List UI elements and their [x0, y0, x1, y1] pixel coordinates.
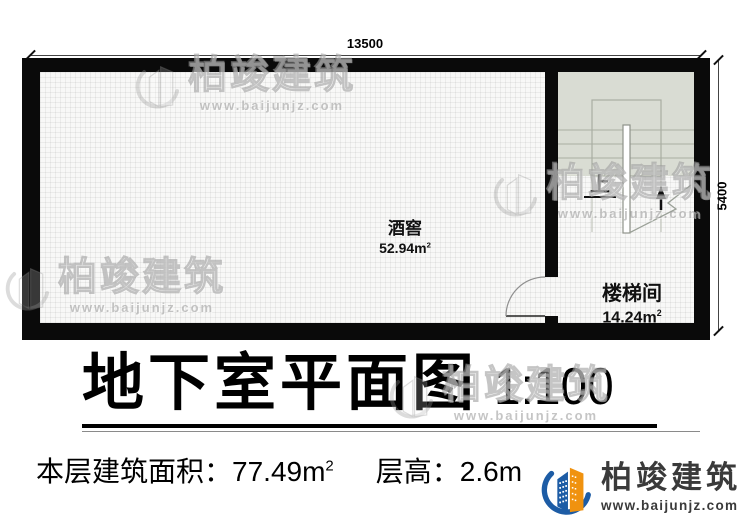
floor-height-value: 2.6m: [460, 456, 522, 487]
room-label-stair-room: 楼梯间 14.24m2: [602, 277, 662, 327]
dimension-line-top: [30, 55, 701, 56]
floorplan-outline: 上 酒窖 52.94m2 楼梯间 14.24m2: [22, 58, 710, 340]
brand-logo: 柏竣建筑 www.baijunjz.com: [538, 456, 741, 520]
title-underline-thick: [82, 424, 657, 428]
floor-height-label: 层高：: [376, 456, 460, 487]
room-name: 酒窖: [379, 214, 431, 239]
room-area: 52.94m2: [379, 240, 431, 256]
stair-handrail: [623, 125, 630, 233]
interior-wall-stub: [545, 316, 558, 323]
floor-info: 本层建筑面积：77.49m2层高：2.6m: [36, 450, 522, 490]
room-name: 楼梯间: [602, 277, 662, 306]
brand-name: 柏竣建筑: [601, 461, 741, 495]
interior-wall: [545, 72, 558, 277]
floor-area-value: 77.49: [232, 456, 302, 487]
brand-logo-icon: [538, 456, 596, 520]
stair-up-label: 上: [584, 174, 616, 198]
brand-url: www.baijunjz.com: [601, 498, 741, 513]
room-label-wine-cellar: 酒窖 52.94m2: [379, 214, 431, 256]
dimension-value-right: 5400: [715, 182, 730, 211]
door-swing-arc: [506, 277, 545, 316]
title-block: 地下室平面图 1:100: [82, 351, 624, 416]
dimension-value-top: 13500: [347, 36, 383, 51]
drawing-scale: 1:100: [494, 360, 614, 415]
room-area: 14.24m2: [602, 308, 662, 327]
floorplan-sheet: 13500 5400: [0, 0, 750, 530]
stair-arrow-head: [656, 186, 666, 199]
title-underline-thin: [82, 431, 700, 432]
page-title: 地下室平面图: [82, 351, 478, 416]
floor-area-label: 本层建筑面积：: [36, 456, 232, 487]
